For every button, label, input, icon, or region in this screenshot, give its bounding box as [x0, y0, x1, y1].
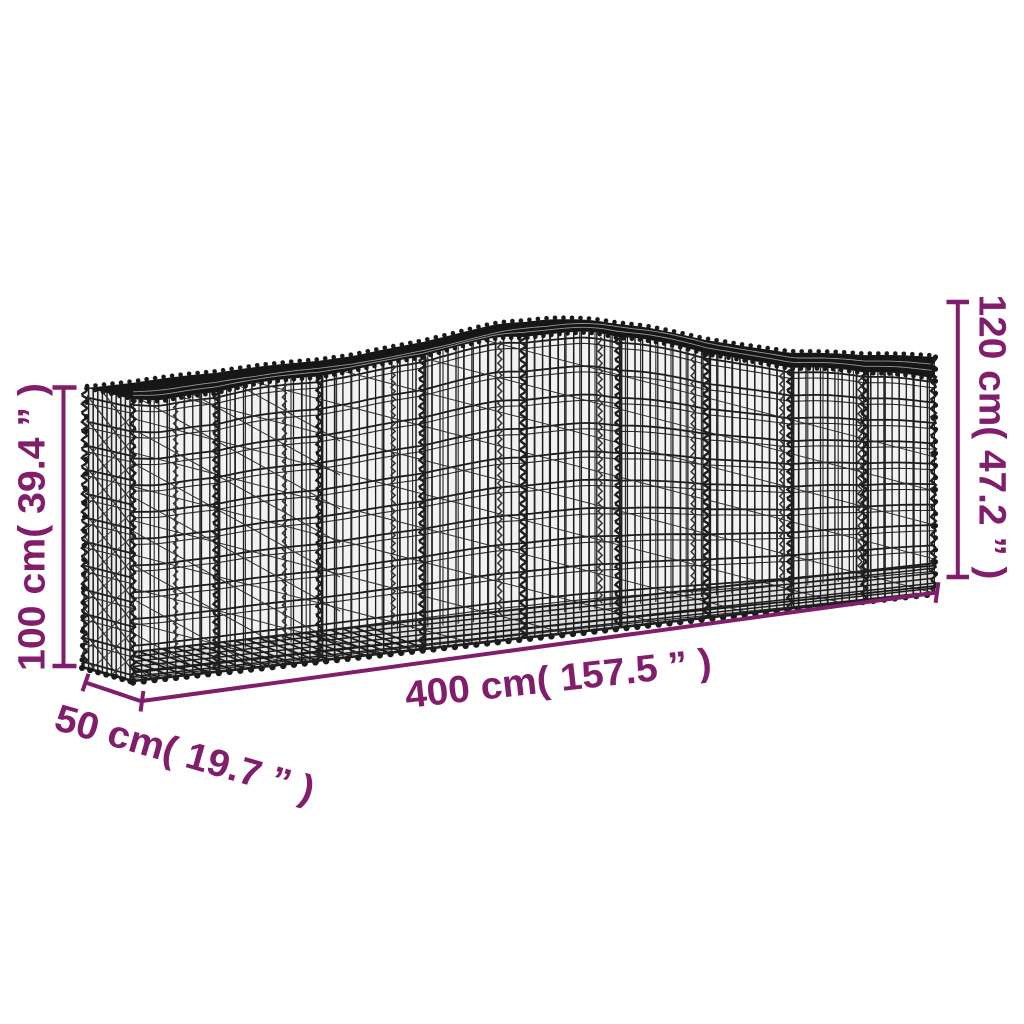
svg-text:100 cm( 39.4 ” ): 100 cm( 39.4 ” ) [12, 383, 54, 671]
svg-text:120 cm( 47.2 ” ): 120 cm( 47.2 ” ) [971, 295, 1013, 580]
